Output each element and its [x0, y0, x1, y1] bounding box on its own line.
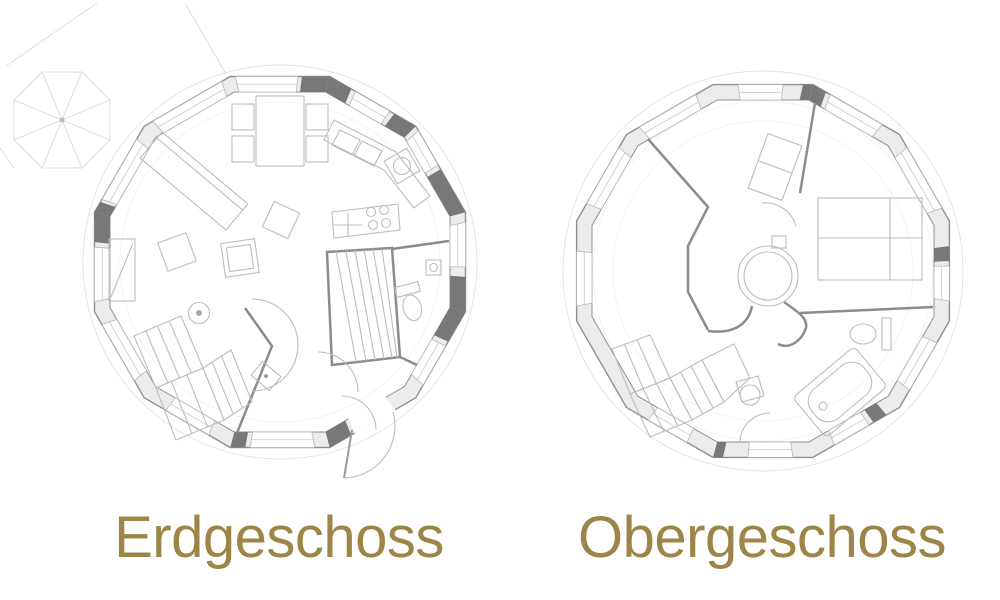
sauna-stair-room — [327, 248, 400, 365]
caption-obergeschoss: Obergeschoss — [578, 505, 946, 570]
parasol-icon — [14, 72, 110, 168]
caption-erdgeschoss: Erdgeschoss — [114, 505, 444, 570]
page: Erdgeschoss Obergeschoss — [0, 0, 1000, 600]
floor-plan-erdgeschoss — [83, 65, 477, 478]
floor-plan-figure: Erdgeschoss Obergeschoss — [0, 0, 1000, 600]
floor-plan-obergeschoss — [563, 71, 963, 471]
